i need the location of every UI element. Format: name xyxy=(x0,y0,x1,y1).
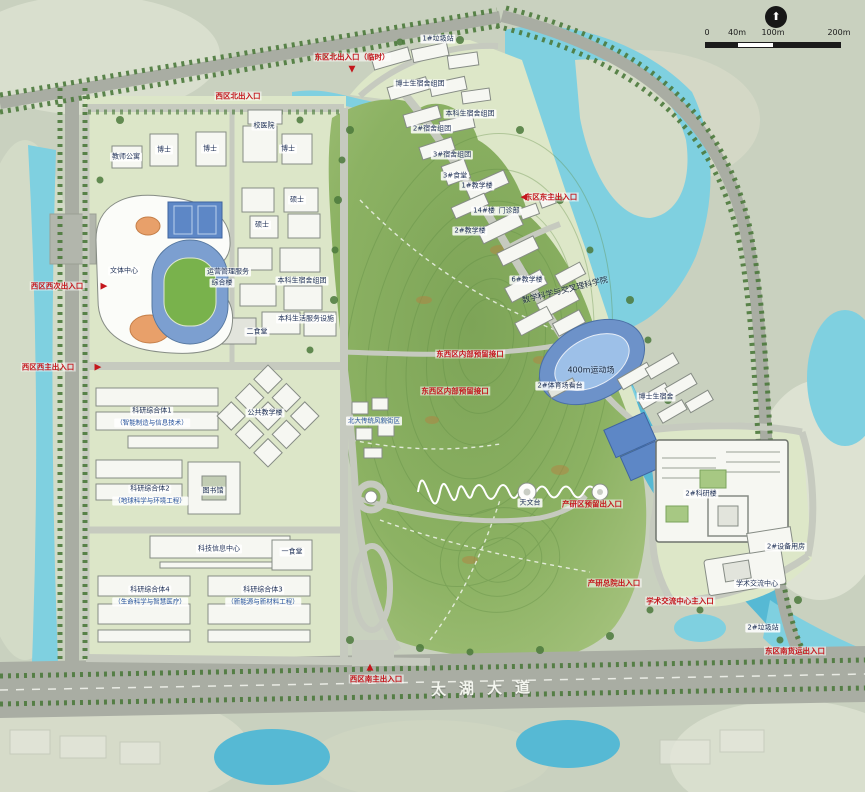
scale-bar: 0 40m 100m 200m xyxy=(701,6,851,54)
scale-tick-200: 200m xyxy=(827,28,850,37)
scale-ticks: 0 40m 100m 200m xyxy=(701,28,851,38)
scale-bar-rule xyxy=(705,42,841,48)
north-arrow-icon xyxy=(765,6,787,28)
scale-tick-40: 40m xyxy=(728,28,746,37)
scale-tick-100: 100m xyxy=(761,28,784,37)
map-canvas xyxy=(0,0,865,792)
scale-tick-0: 0 xyxy=(704,28,709,37)
campus-master-plan: 东区北出入口（临时）▼1#垃圾站西区北出入口校医院教师公寓博士博士博士硕士硕士文… xyxy=(0,0,865,792)
